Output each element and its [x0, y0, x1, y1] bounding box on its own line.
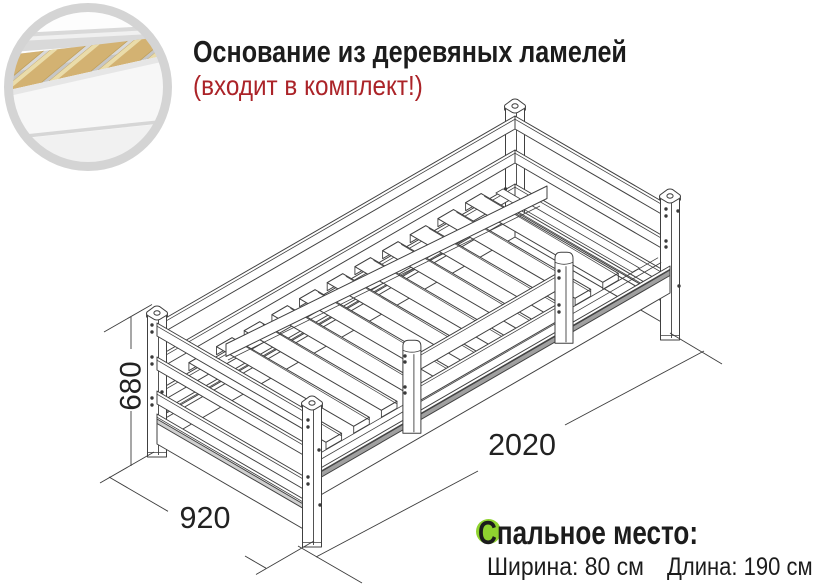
svg-text:680: 680 [115, 361, 148, 410]
svg-text:2020: 2020 [488, 428, 556, 462]
svg-text:920: 920 [180, 501, 231, 535]
